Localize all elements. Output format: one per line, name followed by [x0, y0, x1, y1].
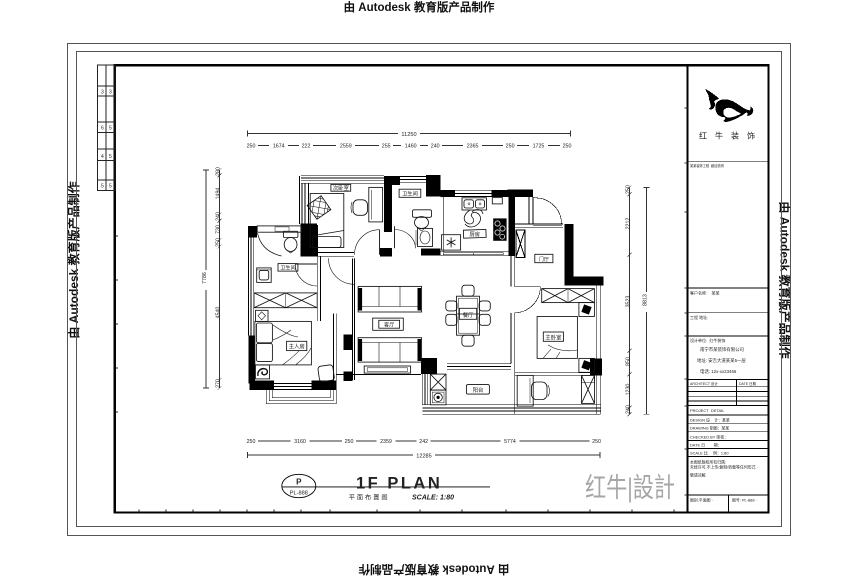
- svg-text:图别:平面图 ·: 图别:平面图 ·: [690, 498, 713, 503]
- svg-text:6: 6: [101, 126, 104, 132]
- svg-text:客户名称: 某某: 客户名称: 某某: [690, 290, 720, 296]
- svg-text:红牛|設計: 红牛|設計: [585, 473, 675, 503]
- svg-text:2359: 2359: [380, 439, 392, 445]
- svg-text:5: 5: [109, 184, 112, 190]
- svg-text:餐厅: 餐厅: [463, 311, 474, 319]
- svg-text:5774: 5774: [504, 439, 516, 445]
- svg-text:卫生间: 卫生间: [280, 264, 296, 272]
- svg-text:ARCHITECT 设计: ARCHITECT 设计: [690, 381, 718, 386]
- svg-text:工程 地址:: 工程 地址:: [690, 314, 708, 320]
- svg-text:PL-888: PL-888: [290, 491, 308, 497]
- svg-text:240: 240: [626, 405, 632, 414]
- svg-text:5: 5: [109, 154, 112, 160]
- svg-text:12285: 12285: [416, 453, 432, 459]
- svg-text:5: 5: [109, 126, 112, 132]
- svg-text:3: 3: [109, 90, 112, 96]
- svg-text:CHECKED BY 审核：: CHECKED BY 审核：: [690, 435, 728, 440]
- svg-text:DRAWING 制图：某某: DRAWING 制图：某某: [690, 426, 729, 431]
- svg-text:由 Autodesk 教育版产品制作: 由 Autodesk 教育版产品制作: [66, 181, 81, 338]
- svg-text:DATE 日 期：: DATE 日 期：: [690, 443, 722, 448]
- svg-text:242: 242: [419, 439, 428, 445]
- svg-text:阳台: 阳台: [473, 386, 484, 394]
- svg-text:P: P: [296, 478, 302, 487]
- svg-text:SCALE: 1:80: SCALE: 1:80: [412, 495, 454, 502]
- svg-text:850: 850: [626, 357, 632, 366]
- svg-text:地址: 安吉大道某某5一层: 地址: 安吉大道某某5一层: [697, 357, 746, 364]
- svg-text:主卧室: 主卧室: [545, 333, 562, 341]
- svg-text:红牛装饰: 红牛装饰: [699, 131, 763, 141]
- svg-text:电话: 12x-xx23456: 电话: 12x-xx23456: [700, 368, 737, 375]
- svg-text:222: 222: [302, 144, 311, 150]
- svg-text:SCALE 比 例：1:80: SCALE 比 例：1:80: [690, 451, 729, 456]
- svg-text:3: 3: [101, 90, 104, 96]
- svg-text:3160: 3160: [294, 439, 306, 445]
- svg-text:2365: 2365: [467, 144, 479, 150]
- svg-text:平面布置图: 平面布置图: [349, 494, 390, 502]
- svg-text:1725: 1725: [533, 144, 545, 150]
- svg-text:1674: 1674: [273, 144, 285, 150]
- svg-text:2212: 2212: [626, 218, 632, 230]
- svg-text:敬请谅解.: 敬请谅解.: [690, 473, 707, 478]
- svg-text:250: 250: [563, 144, 572, 150]
- svg-text:厨房: 厨房: [470, 230, 480, 238]
- svg-text:250: 250: [216, 238, 222, 247]
- svg-text:图号: PL-888 ·: 图号: PL-888 ·: [732, 498, 757, 503]
- svg-text:240: 240: [431, 144, 440, 150]
- svg-text:由 Autodesk 教育版产品制作: 由 Autodesk 教育版产品制作: [344, 0, 495, 14]
- svg-text:设计单位: 红牛装饰: 设计单位: 红牛装饰: [690, 337, 725, 343]
- svg-text:4540: 4540: [216, 307, 222, 319]
- svg-text:1494: 1494: [216, 188, 222, 200]
- svg-text:南宁市某装饰有限公司: 南宁市某装饰有限公司: [700, 346, 744, 353]
- svg-text:11250: 11250: [401, 132, 416, 138]
- svg-text:250: 250: [592, 439, 601, 445]
- svg-text:3523: 3523: [626, 296, 632, 308]
- svg-text:255: 255: [382, 144, 391, 150]
- svg-text:5: 5: [101, 184, 104, 190]
- svg-text:250: 250: [506, 144, 515, 150]
- svg-text:250: 250: [626, 185, 632, 194]
- svg-text:250: 250: [247, 144, 256, 150]
- svg-text:PROJECT DETAIL: PROJECT DETAIL: [690, 408, 725, 413]
- svg-text:270: 270: [216, 379, 222, 388]
- svg-text:次卧室: 次卧室: [333, 184, 350, 192]
- svg-text:门厅: 门厅: [539, 255, 549, 263]
- svg-text:未经许可,不上传/复制/转载等任何形式 ·: 未经许可,不上传/复制/转载等任何形式 ·: [690, 465, 758, 470]
- svg-text:由 Autodesk 教育版产品制作: 由 Autodesk 教育版产品制作: [358, 563, 509, 577]
- svg-text:250: 250: [345, 439, 354, 445]
- svg-text:客厅: 客厅: [384, 321, 394, 329]
- svg-text:250: 250: [247, 439, 256, 445]
- svg-text:某某装饰工程 细目说明: 某某装饰工程 细目说明: [690, 163, 724, 168]
- svg-text:240: 240: [216, 212, 222, 221]
- svg-text:2559: 2559: [340, 144, 352, 150]
- svg-text:卫生间: 卫生间: [402, 190, 418, 198]
- svg-text:4: 4: [101, 154, 104, 160]
- svg-text:1F PLAN: 1F PLAN: [356, 475, 442, 493]
- svg-text:8813: 8813: [643, 294, 649, 306]
- svg-text:730: 730: [216, 225, 222, 234]
- svg-text:200: 200: [216, 167, 222, 176]
- svg-text:7786: 7786: [202, 272, 208, 284]
- svg-text:DESIGN 设 计：某某: DESIGN 设 计：某某: [690, 418, 730, 423]
- svg-text:DATE 日期: DATE 日期: [739, 381, 757, 386]
- svg-text:1230: 1230: [626, 384, 632, 396]
- svg-text:主人房: 主人房: [289, 343, 305, 351]
- svg-text:1460: 1460: [405, 144, 417, 150]
